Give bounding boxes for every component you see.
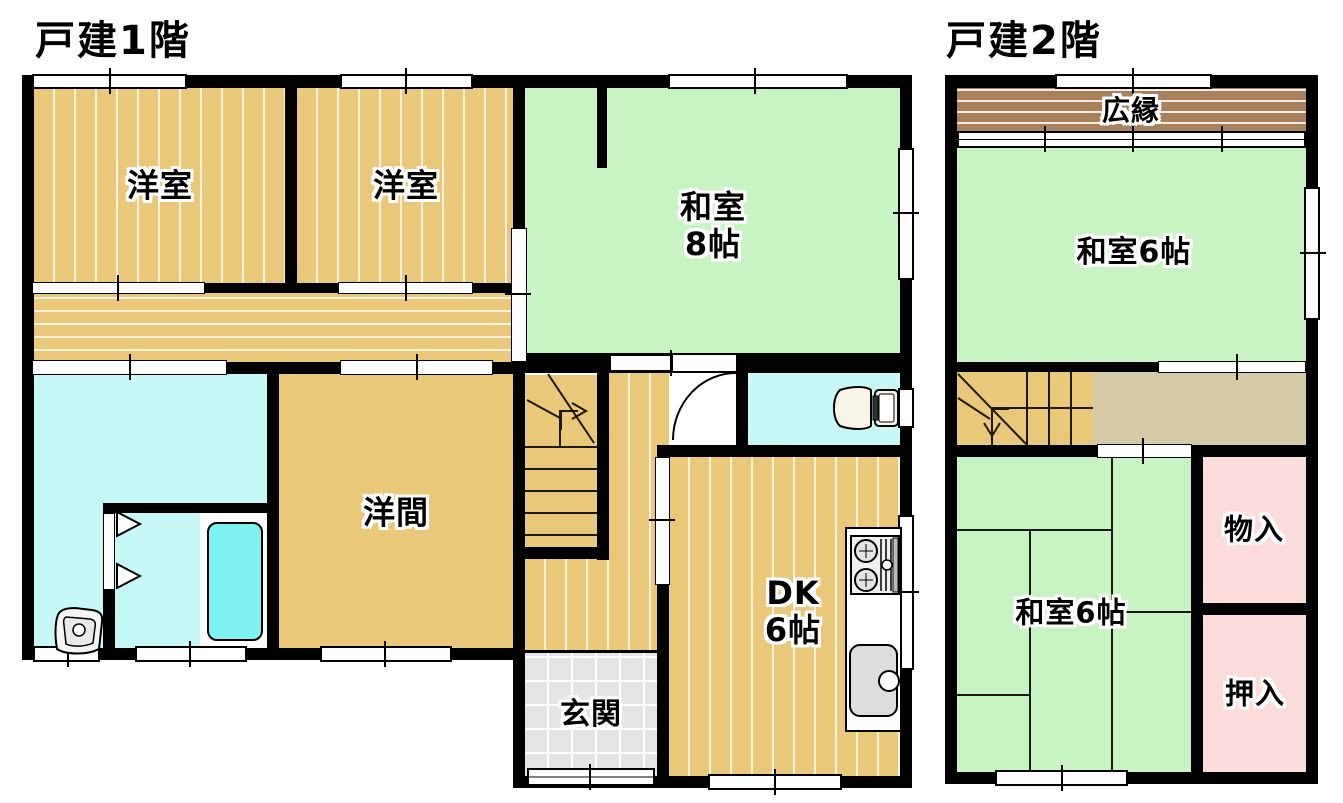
wall — [1306, 75, 1318, 784]
wall — [103, 503, 277, 513]
floor-plan: 戸建1階 戸建2階 — [0, 0, 1343, 803]
window-tick — [893, 591, 919, 593]
wall — [957, 362, 1158, 372]
room-label-japanese-6jo-upper: 和室6帖 — [1077, 236, 1192, 271]
hallway-f1-upper — [609, 365, 669, 445]
wall-opening — [673, 355, 736, 371]
window-tick — [1142, 438, 1144, 464]
wall — [103, 590, 115, 648]
wall — [597, 365, 609, 560]
window-tick — [1221, 126, 1223, 152]
bathroom-door — [103, 513, 115, 590]
wall — [513, 547, 609, 559]
bathroom — [115, 513, 200, 648]
window-tick — [649, 519, 675, 521]
door-swing-area — [669, 365, 736, 445]
room-label-japanese-8jo: 和室 8帖 — [680, 189, 746, 263]
window — [135, 646, 247, 662]
window-tick — [754, 68, 756, 94]
entrance-door — [527, 768, 655, 786]
sliding-door — [1158, 361, 1306, 373]
window-tick — [189, 641, 191, 667]
entrance-step-line — [525, 650, 657, 653]
floor2-title: 戸建2階 — [946, 8, 1102, 66]
wall — [513, 75, 525, 788]
window — [898, 388, 914, 428]
window — [668, 74, 848, 89]
sliding-door — [655, 457, 670, 585]
window-tick — [774, 769, 776, 795]
window-tick — [1061, 765, 1063, 791]
room-label-western-2: 洋室 — [373, 168, 439, 205]
room-label-closet: 押入 — [1225, 677, 1285, 710]
window-tick — [1044, 126, 1046, 152]
window-tick — [1300, 252, 1326, 254]
wall — [657, 445, 912, 457]
hallway-f2 — [1093, 372, 1306, 445]
sliding-door — [1097, 444, 1192, 458]
floor1-title: 戸建1階 — [35, 8, 191, 66]
window-tick — [117, 275, 119, 301]
window-tick — [109, 68, 111, 94]
window-tick — [1236, 354, 1238, 380]
room-label-veranda: 広縁 — [1102, 95, 1160, 127]
room-label-western-middle: 洋間 — [363, 495, 429, 532]
room-label-storage: 物入 — [1224, 513, 1284, 546]
window-tick — [589, 764, 591, 790]
room-label-entrance: 玄関 — [560, 698, 622, 733]
window-tick — [384, 641, 386, 667]
corridor — [34, 293, 513, 362]
wall — [945, 75, 957, 784]
wall — [736, 362, 748, 445]
window — [320, 646, 452, 662]
room-label-japanese-6jo-lower: 和室6帖 — [1015, 596, 1126, 629]
hallway-f1-mid — [609, 445, 657, 650]
window-tick — [670, 350, 672, 376]
window-tick — [1132, 126, 1134, 152]
window-tick — [416, 354, 418, 380]
wall — [285, 88, 297, 293]
staircase-f1 — [525, 375, 597, 547]
room-label-western-1: 洋室 — [127, 168, 193, 205]
window-tick — [505, 293, 531, 295]
sliding-door — [511, 228, 527, 362]
wall-stub — [597, 88, 607, 168]
staircase-f2 — [957, 372, 1093, 445]
wall — [1203, 603, 1306, 615]
hallway-f1-lower — [525, 559, 609, 650]
toilet-room — [748, 365, 900, 445]
bathtub — [207, 522, 263, 641]
window-tick — [893, 212, 919, 214]
sliding-door — [610, 355, 673, 371]
window — [898, 148, 914, 280]
window-tick — [405, 275, 407, 301]
wall — [1191, 457, 1203, 772]
window-tick — [67, 641, 69, 667]
room-label-dk: DK 6帖 — [765, 575, 821, 649]
window-tick — [1132, 68, 1134, 94]
window-tick — [129, 354, 131, 380]
window-tick — [405, 68, 407, 94]
